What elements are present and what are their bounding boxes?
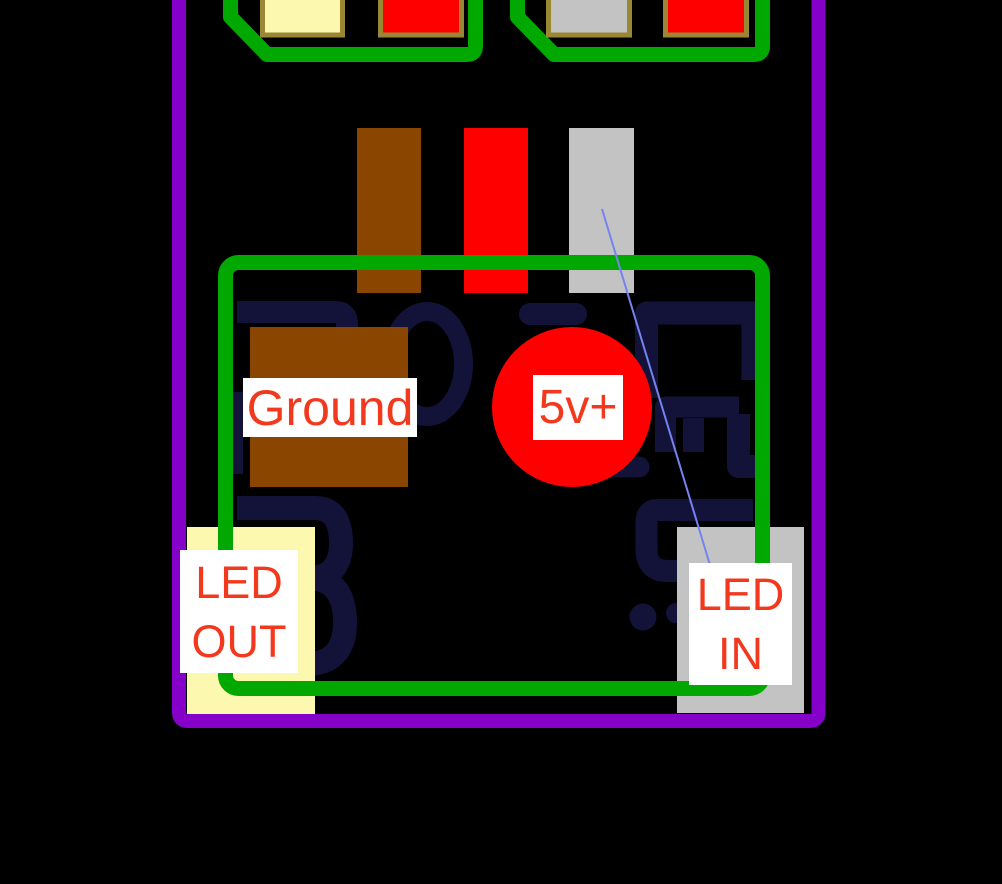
silkscreen-dot	[630, 604, 657, 631]
top-pad-cream	[263, 0, 343, 35]
top-pad-red-left	[381, 0, 462, 35]
power-label: 5v+	[533, 375, 623, 440]
led-out-label-line1: LED	[195, 553, 283, 612]
silkscreen-pi-shape	[647, 313, 754, 398]
pcb-diagram: Ground 5v+ LED OUT LED IN	[0, 0, 1002, 884]
led-in-label-line2: IN	[718, 624, 763, 683]
connector-pads	[263, 0, 747, 35]
ground-label: Ground	[243, 378, 417, 437]
top-pad-red-right	[666, 0, 747, 35]
led-in-label: LED IN	[689, 563, 792, 685]
led-out-label-line2: OUT	[192, 612, 287, 671]
ground-label-text: Ground	[247, 379, 414, 437]
power-label-text: 5v+	[539, 380, 618, 435]
pcb-layout-canvas	[0, 0, 1002, 884]
led-in-label-line1: LED	[697, 565, 785, 624]
top-pad-gray	[549, 0, 630, 35]
led-out-label: LED OUT	[180, 550, 298, 673]
